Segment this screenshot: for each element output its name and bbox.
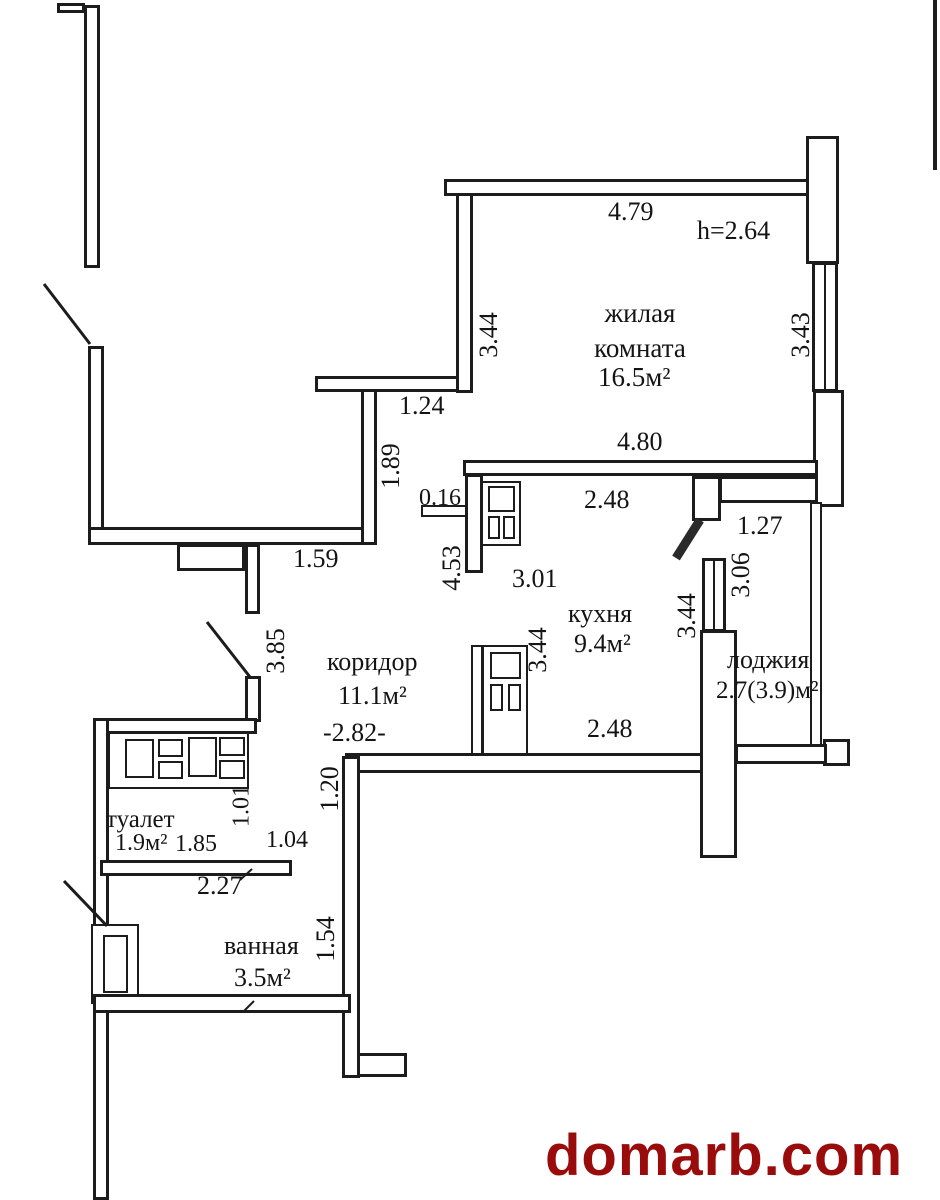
sink-icon-pane <box>508 684 521 711</box>
room-area-living: 16.5м² <box>598 363 670 393</box>
vent-cell <box>219 760 245 779</box>
vent-cell <box>219 737 245 756</box>
dim-1-54: 1.54 <box>311 916 341 962</box>
vent-cell <box>158 739 183 757</box>
stove-icon-pane <box>503 516 515 539</box>
dim-3-01: 3.01 <box>512 565 558 594</box>
wall-outer-left-mid <box>88 346 104 532</box>
room-area-bath: 3.5м² <box>234 964 291 993</box>
dim-3-06: 3.06 <box>726 552 756 598</box>
dim-3-85: 3.85 <box>261 628 291 674</box>
room-label-corridor: коридор <box>327 648 417 677</box>
dim-1-04: 1.04 <box>266 827 308 853</box>
room-label-loggia: лоджия <box>727 646 809 675</box>
wall-living-top <box>444 179 810 196</box>
dim-1-85: 1.85 <box>175 831 217 857</box>
wall-loggia-top <box>719 476 818 503</box>
sink-icon-pane <box>490 684 503 711</box>
room-area-toilet: 1.9м² <box>115 830 167 856</box>
dim-0-16: 0.16 <box>419 485 461 511</box>
dim-3-44-kitchen: 3.44 <box>523 627 553 673</box>
bath-niche-inner <box>103 935 128 993</box>
stove-icon-pane <box>488 486 515 512</box>
wall-leftroom-right <box>361 382 377 545</box>
wall-loggia-bottom <box>735 744 827 764</box>
wall-bath-bottom <box>93 994 351 1013</box>
wall-loggia-corner-block <box>823 739 850 766</box>
wall-entrance-step <box>357 1053 407 1077</box>
room-area-kitchen: 9.4м² <box>574 630 631 659</box>
ceiling-height-note: h=2.64 <box>697 217 770 246</box>
dim-1-24: 1.24 <box>399 392 445 421</box>
kitchen-loggia-window-icon <box>702 558 726 632</box>
wall-loggia-right <box>810 502 822 747</box>
dim-4-79: 4.79 <box>608 198 654 227</box>
room-label-bath: ванная <box>224 932 299 961</box>
dim-2-48-bottom: 2.48 <box>587 715 633 744</box>
dim-1-27: 1.27 <box>737 512 783 541</box>
wall-right-edge-fragment <box>933 0 937 170</box>
vent-cell <box>188 737 217 777</box>
dim-2-82: -2.82- <box>323 719 386 748</box>
dim-3-43: 3.43 <box>786 312 816 358</box>
dim-1-20: 1.20 <box>315 766 345 812</box>
wall-outer-left-top <box>84 5 100 268</box>
dim-4-53: 4.53 <box>437 545 467 591</box>
wall-kitchen-bottom <box>345 753 706 773</box>
dim-1-59: 1.59 <box>293 545 339 574</box>
wall-toilet-stub-bottom <box>245 676 261 722</box>
wall-corridor-top <box>315 376 473 392</box>
wall-toilet-stub-top <box>245 544 260 614</box>
dim-1-01: 1.01 <box>229 785 256 827</box>
wall-living-left <box>456 187 473 393</box>
dim-3-44-living: 3.44 <box>474 312 504 358</box>
vent-cell <box>158 761 183 779</box>
vent-cell <box>125 739 154 778</box>
wall-kitchen-corner-block <box>692 476 721 521</box>
wall-leftroom-step <box>177 544 245 571</box>
sink-icon-pane <box>490 652 521 679</box>
watermark-domarb: domarb.com <box>545 1122 903 1189</box>
room-area-loggia: 2.7(3.9)м² <box>716 677 818 705</box>
room-label-living: жилая комната <box>573 296 707 366</box>
dim-4-80: 4.80 <box>617 428 663 457</box>
wall-living-bottom <box>463 460 818 476</box>
wall-top-left-stub <box>57 3 85 13</box>
wall-living-right-block-top <box>806 136 839 264</box>
room-area-corridor: 11.1м² <box>338 682 407 711</box>
dim-2-27: 2.27 <box>197 872 243 901</box>
dim-2-48-top: 2.48 <box>584 486 630 515</box>
wall-toilet-bath-divider <box>100 860 292 876</box>
dim-1-89: 1.89 <box>376 443 406 489</box>
wall-leftroom-bottom <box>88 527 377 545</box>
stove-icon-pane <box>488 516 500 539</box>
floor-plan: 4.79 h=2.64 жилая комната 16.5м² 4.80 1.… <box>0 0 940 1200</box>
dim-3-44-loggia: 3.44 <box>672 593 702 639</box>
room-label-kitchen: кухня <box>568 600 632 629</box>
